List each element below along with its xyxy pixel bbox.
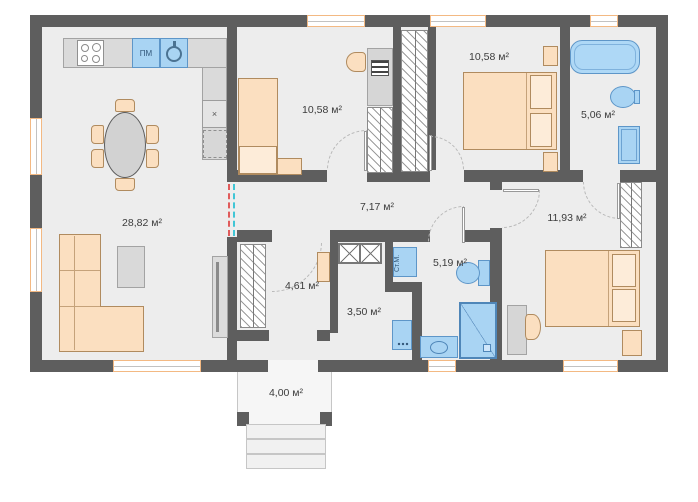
bathtub [570, 40, 640, 74]
washing-machine-label: Ст.М. [394, 250, 416, 276]
wall-top [365, 15, 430, 27]
dining-chair [115, 99, 135, 112]
sofa-cushion-line [60, 270, 100, 271]
closet-shelf [317, 252, 330, 282]
stove-burner [92, 55, 100, 63]
washer-inner-line [621, 129, 637, 161]
wall-left [30, 15, 42, 118]
sofa-back-line [74, 236, 75, 350]
wall-living-divider-upper [227, 27, 237, 182]
wall-bedroom3-west-stub [490, 182, 502, 190]
desk-shelf-bedroom1 [371, 60, 389, 76]
wall-bottom [318, 360, 428, 372]
kitchen-dashed-appliance [203, 130, 227, 158]
nightstand-bedroom3 [622, 330, 642, 356]
dining-chair [91, 149, 104, 168]
room-label-bedroom2: 10,58 м² [454, 50, 524, 64]
room-label-hall: 3,50 м² [329, 305, 399, 319]
wall-bedroom2-east [560, 27, 570, 170]
x-marker: × [212, 109, 217, 119]
window-bath-top [590, 15, 618, 27]
room-label-bedroom1: 10,58 м² [287, 103, 357, 117]
pillow-bedroom3 [612, 289, 636, 322]
door-leaf-bedroom3 [503, 189, 539, 192]
porch-step [246, 424, 326, 439]
sink-bowl-icon [430, 341, 448, 354]
stove-burner [81, 44, 89, 52]
wall-right [656, 15, 668, 372]
dining-chair [91, 125, 104, 144]
wall-corridor-south [330, 230, 430, 242]
wall-bottom [618, 360, 668, 372]
room-label-bedroom3: 11,93 м² [532, 211, 602, 225]
dining-chair [146, 125, 159, 144]
window-living-left-2 [30, 228, 42, 292]
desk-chair-bedroom3 [525, 314, 541, 340]
kitchen-sink-tap-icon [173, 41, 176, 48]
washing-machine: Ст.М. [393, 247, 417, 277]
room-label-living: 28,82 м² [107, 216, 177, 230]
zone-boundary-marker-cyan [233, 184, 235, 236]
window-living-bottom [113, 360, 201, 372]
coffee-table [117, 246, 145, 288]
sink-bath-bottom [420, 336, 458, 358]
wardrobe-closet [240, 244, 266, 328]
sofa-main [59, 234, 101, 352]
room-label-porch: 4,00 м² [251, 386, 321, 400]
wall-corridor-south [237, 230, 272, 242]
nightstand-bedroom2 [543, 46, 558, 66]
window-living-left-1 [30, 118, 42, 175]
dining-table [104, 112, 146, 178]
wardrobe-strip [401, 30, 428, 172]
desk-chair-bedroom1 [346, 52, 366, 72]
wardrobe-bedroom1 [367, 107, 393, 173]
sink-bath-top [610, 86, 636, 108]
door-leaf-bedroom2 [429, 135, 432, 171]
dishwasher-label: ПМ [133, 49, 159, 58]
room-label-bath-bottom: 5,19 м² [415, 256, 485, 270]
wall-bedroom1-east [393, 27, 401, 170]
bathtub-inner [574, 44, 636, 70]
shower-drain-icon [483, 344, 491, 352]
bed-bedroom3-line [608, 251, 609, 326]
sofa-chaise [100, 306, 144, 352]
room-label-corridor: 7,17 м² [342, 200, 412, 214]
wardrobe-bedroom3 [620, 182, 642, 248]
kitchen-sink [160, 38, 188, 68]
washer-bath-top [618, 126, 640, 164]
bed-bedroom1-blanket [239, 146, 277, 174]
bed-bedroom2-line [526, 73, 527, 149]
window-bedroom1 [307, 15, 365, 27]
x-cabinet-cell [360, 244, 381, 263]
door-leaf-bath-bottom [462, 207, 465, 243]
dishwasher: ПМ [132, 38, 160, 68]
wall-living-divider-lower [227, 237, 237, 360]
window-bedroom2 [430, 15, 486, 27]
window-bedroom3 [563, 360, 618, 372]
tv-screen [216, 262, 219, 332]
shower [459, 302, 497, 359]
nightstand-bedroom2 [543, 152, 558, 172]
wall-bottom [456, 360, 563, 372]
x-cabinet-cell [339, 244, 360, 263]
window-bath-bottom [428, 360, 456, 372]
hall-cabinet-vents [397, 342, 409, 346]
sink-bath-top-base [634, 90, 640, 104]
hall-cabinet [392, 320, 412, 350]
wall-top [486, 15, 590, 27]
wall-closet-south [237, 330, 269, 341]
dining-chair [146, 149, 159, 168]
front-door-opening [268, 360, 318, 372]
wall-bottom [201, 360, 268, 372]
wall-corridor-south [464, 230, 490, 242]
desk-bedroom1 [367, 48, 393, 106]
wall-left [30, 175, 42, 228]
stove-burner [92, 43, 101, 52]
wall-closet-south [317, 330, 330, 341]
pillow-bedroom2 [530, 113, 552, 147]
kitchen-x-cabinet: × [202, 100, 227, 128]
floor-plan: ПМ × 28,82 м² 10,58 м² 10,58 м² [0, 0, 698, 502]
stove-burner [81, 55, 88, 62]
porch-step [246, 454, 326, 469]
kitchen-sink-bowl-icon [166, 46, 182, 62]
wall-corridor-north [620, 170, 656, 182]
porch-step [246, 439, 326, 454]
wall-bottom [30, 360, 113, 372]
dining-chair [115, 178, 135, 191]
pillow-bedroom2 [530, 75, 552, 109]
room-label-bath-top: 5,06 м² [563, 108, 633, 122]
pillow-bedroom3 [612, 254, 636, 287]
zone-boundary-marker-red [228, 184, 230, 236]
desk-bedroom3 [507, 305, 527, 355]
bedroom1-bench [277, 158, 302, 175]
wall-top [30, 15, 307, 27]
wall-corridor-north [464, 170, 583, 182]
hall-x-cabinet [338, 243, 382, 264]
tv-stand [212, 256, 228, 338]
room-label-closet: 4,61 м² [267, 279, 337, 293]
stove [77, 40, 104, 66]
sofa-cushion-line [60, 306, 100, 307]
